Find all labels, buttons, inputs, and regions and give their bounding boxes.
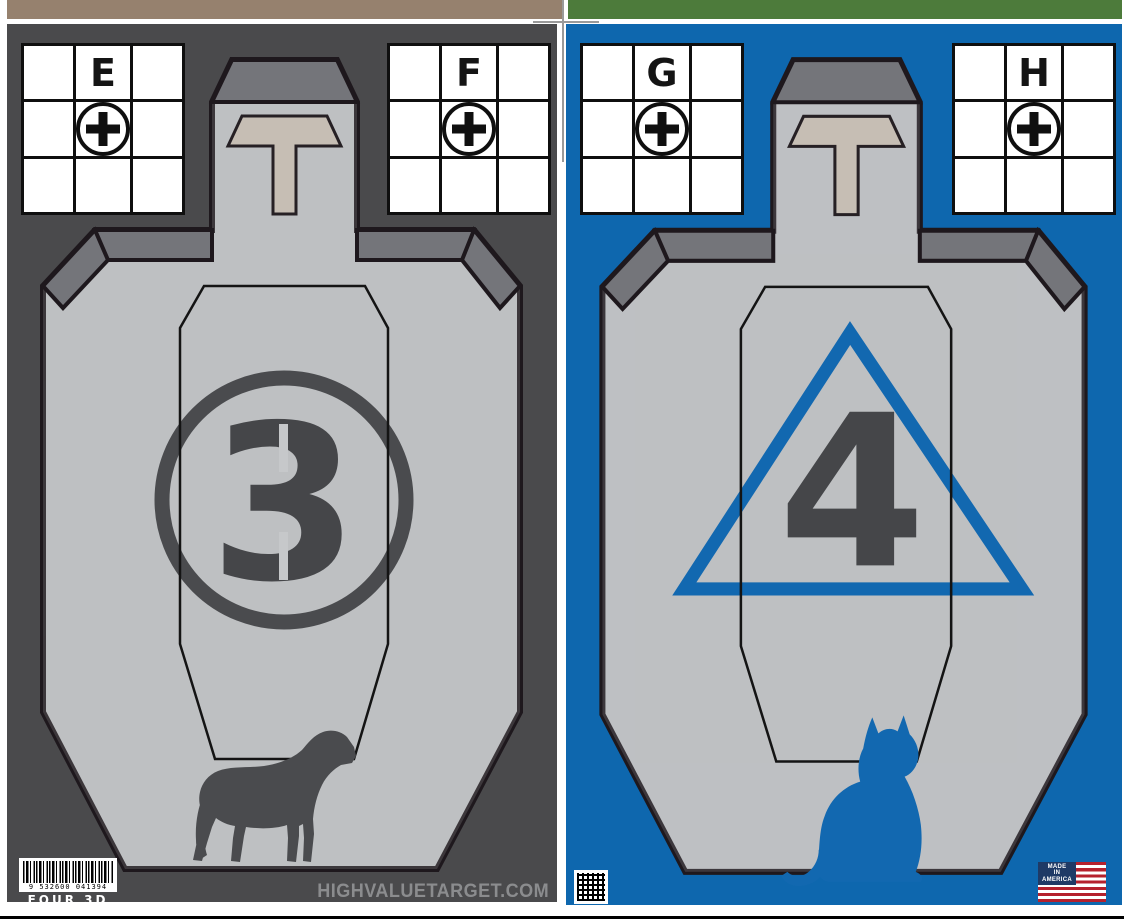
grid-cell: [24, 102, 73, 156]
crosshair-icon: [442, 102, 496, 156]
grid-cell: [390, 102, 439, 156]
grid-cell: [390, 159, 439, 212]
grid-cell: [955, 102, 1004, 156]
target-sheet-4: 4 G H MA: [566, 24, 1122, 905]
grid-cell: [692, 46, 741, 99]
grid-cell: [635, 159, 689, 212]
made-in-america-badge: MADE IN AMERICA: [1038, 862, 1106, 902]
target-number: 4: [778, 370, 926, 615]
badge-line: AMERICA: [1042, 877, 1072, 884]
aiming-grid-h: H: [952, 43, 1116, 215]
grid-cell: [1064, 159, 1113, 212]
barcode: 9 532600 041394 FOUR 3D: [19, 858, 117, 902]
grid-cell: [76, 102, 130, 156]
grid-cell: [390, 46, 439, 99]
barcode-label: FOUR 3D: [19, 893, 117, 902]
grid-cell: [1064, 46, 1113, 99]
crop-mark-horizontal: [533, 21, 599, 23]
grid-cell: [499, 102, 548, 156]
grid-cell: H: [1007, 46, 1061, 99]
grid-letter: H: [1018, 54, 1050, 92]
crosshair-icon: [76, 102, 130, 156]
badge-line: MADE: [1048, 864, 1067, 871]
grid-letter: G: [646, 54, 677, 92]
grid-cell: G: [635, 46, 689, 99]
qr-code-icon: [574, 870, 608, 904]
grid-cell: [955, 46, 1004, 99]
grid-cell: [1064, 102, 1113, 156]
grid-letter: F: [456, 54, 482, 92]
grid-cell: [76, 159, 130, 212]
grid-cell: [1007, 159, 1061, 212]
grid-cell: [133, 102, 182, 156]
grid-cell: [583, 102, 632, 156]
barcode-digits: 9 532600 041394: [23, 883, 113, 891]
grid-cell: [442, 102, 496, 156]
grid-cell: [583, 46, 632, 99]
grid-cell: [692, 159, 741, 212]
grid-cell: [133, 159, 182, 212]
grid-cell: [583, 159, 632, 212]
footer-url: HIGHVALUETARGET.COM: [317, 881, 549, 902]
grid-letter: E: [90, 54, 116, 92]
crosshair-icon: [635, 102, 689, 156]
crosshair-icon: [1007, 102, 1061, 156]
grid-cell: [692, 102, 741, 156]
barcode-box: 9 532600 041394: [19, 858, 117, 892]
target-number: 3: [209, 379, 359, 630]
page-edge-line: [0, 916, 1124, 919]
left-sheet-top-bar: [7, 0, 563, 19]
grid-cell: [499, 159, 548, 212]
aiming-grid-g: G: [580, 43, 744, 215]
badge-line: IN: [1054, 870, 1061, 877]
grid-cell: [635, 102, 689, 156]
grid-cell: [24, 159, 73, 212]
stencil-slit-bottom: [279, 532, 288, 580]
right-sheet-top-bar: [568, 0, 1122, 19]
grid-cell: [24, 46, 73, 99]
grid-cell: [499, 46, 548, 99]
aiming-grid-e: E: [21, 43, 185, 215]
aiming-grid-f: F: [387, 43, 551, 215]
crop-mark-vertical: [562, 0, 564, 162]
made-in-america-text: MADE IN AMERICA: [1038, 862, 1076, 885]
grid-cell: F: [442, 46, 496, 99]
grid-cell: E: [76, 46, 130, 99]
scanned-target-page: 3 E F: [0, 0, 1124, 922]
stencil-slit-top: [279, 424, 288, 472]
barcode-bars-icon: [23, 861, 113, 883]
grid-cell: [1007, 102, 1061, 156]
grid-cell: [133, 46, 182, 99]
target-sheet-3: 3 E F: [7, 24, 557, 902]
grid-cell: [442, 159, 496, 212]
grid-cell: [955, 159, 1004, 212]
